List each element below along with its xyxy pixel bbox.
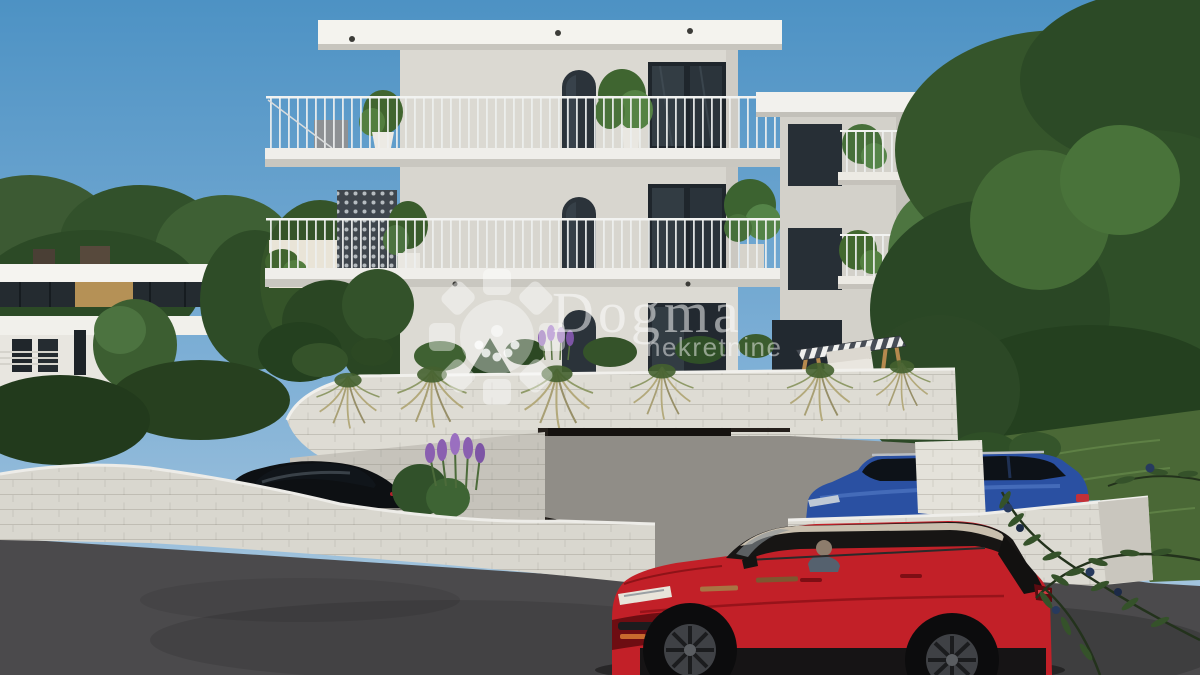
balcony-slab-floor2 [265,268,782,279]
olive-berry [1086,568,1095,577]
downlight [349,36,355,42]
lavender-flower [450,433,460,455]
roof-slab-right-wing [756,92,918,112]
render-canvas: Dogma nekretnine [0,0,1200,675]
balcony-railing-floor2 [266,218,781,268]
lavender-flower [425,443,435,463]
pinwheel-sun-icon [429,269,565,405]
door-handle [900,574,922,578]
olive-berry [1114,588,1122,596]
downlight [555,30,561,36]
lavender-flower [437,439,447,461]
lavender-flower [475,443,485,463]
window-wing-floor2 [788,228,842,290]
downlight [687,28,693,34]
olive-berry [1052,606,1060,614]
roof-underside [318,44,782,50]
driver-head [816,540,832,556]
olive-berry [1004,504,1013,513]
street-wall-end-face [1098,497,1153,584]
balcony-slab-floor3 [265,148,782,159]
roof-box [80,246,110,266]
olive-berry [1016,524,1024,532]
roof-slab-top [318,20,782,44]
window-wing-floor3 [788,124,842,186]
window [38,339,58,372]
scene-svg: Dogma nekretnine [0,0,1200,675]
roof-box [33,249,55,266]
taillight [1076,494,1089,502]
door-handle [800,578,822,582]
balcony-slab [838,172,906,180]
watermark-subtitle-text: nekretnine [646,332,782,362]
window [12,339,32,372]
lavender-flower [463,437,473,459]
olive-berry [1146,464,1155,473]
fog-light [620,634,646,639]
balcony-railing-floor3 [266,96,781,148]
window-slit [74,330,86,375]
road-shadow [140,578,460,622]
